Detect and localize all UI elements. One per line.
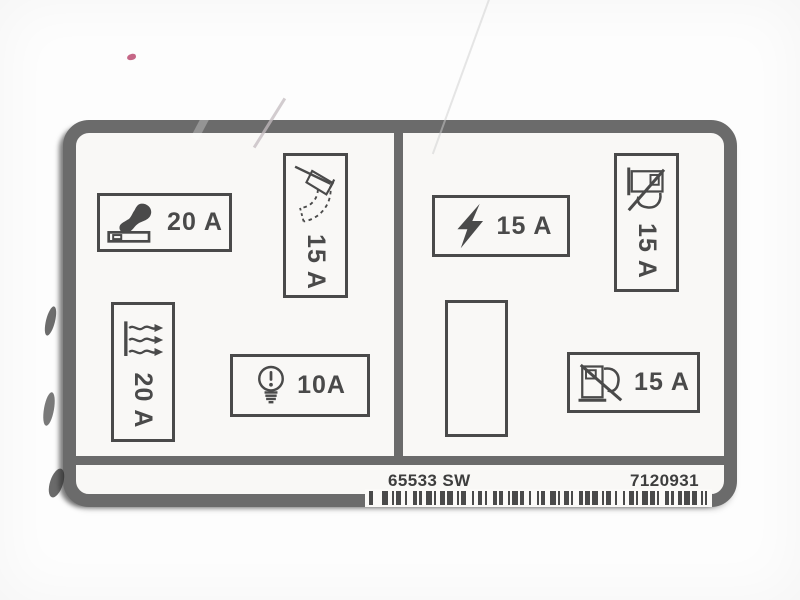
fuse-cell-fuel-pump-top: 15 A [614,153,679,292]
amperage-label: 15 A [634,368,690,397]
fuse-cell-windscreen-wiper: 15 A [283,153,348,298]
part-number: 65533 SW [388,471,471,491]
amperage-label: 20 A [129,373,158,429]
serial-number: 7120931 [630,471,699,491]
fuse-cell-fuel-pump-bottom: 15 A [567,352,700,413]
fuel-pump-icon [577,362,625,404]
heater-blower-icon [122,316,165,364]
fuse-cell-cigarette-lighter: 20 A [97,193,232,252]
amperage-label: 15 A [301,234,330,290]
scan-artifact-red-dot [126,53,136,61]
horizontal-divider [76,456,724,465]
cigarette-lighter-icon [106,200,158,245]
barcode-bars [369,491,708,505]
scan-artifact-smudge [43,305,59,336]
lightning-bolt-icon [450,202,488,250]
amperage-label: 15 A [632,223,661,279]
light-bulb-icon [254,364,288,408]
windscreen-wiper-icon [293,161,339,225]
scan-artifact-smudge [41,391,57,426]
fuse-cell-heater-blower: 20 A [111,302,175,442]
vertical-divider [394,133,403,456]
fuel-pump-icon [626,166,668,214]
fuse-cell-empty [445,300,508,437]
fuse-box-label: 20 A 15 A 20 A 10A 15 A 15 A [63,120,737,507]
amperage-label: 20 A [167,208,223,237]
fuse-cell-lightning: 15 A [432,195,570,257]
barcode [365,489,712,507]
amperage-label: 15 A [497,212,553,241]
amperage-label: 10A [297,371,346,400]
fuse-cell-light-bulb: 10A [230,354,370,417]
photo-background: 20 A 15 A 20 A 10A 15 A 15 A [0,0,800,600]
